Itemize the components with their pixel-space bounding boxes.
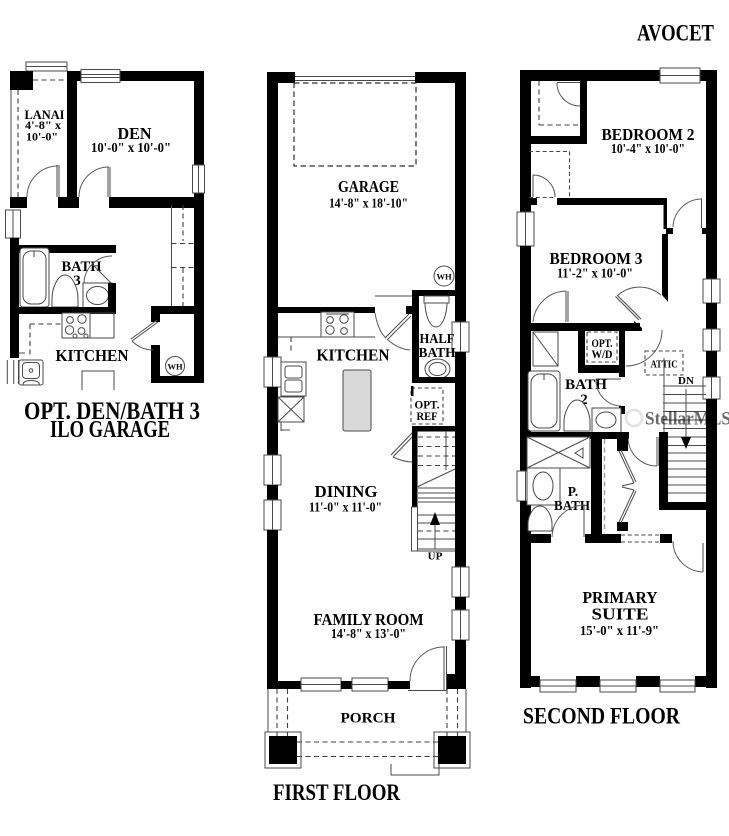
svg-text:SECOND FLOOR: SECOND FLOOR <box>523 704 680 729</box>
svg-text:14'-8" x 13'-0": 14'-8" x 13'-0" <box>331 626 406 641</box>
svg-text:W/D: W/D <box>592 347 613 361</box>
svg-text:11'-2" x 10'-0": 11'-2" x 10'-0" <box>557 266 633 281</box>
svg-text:WH: WH <box>167 362 183 372</box>
svg-text:FIRST FLOOR: FIRST FLOOR <box>273 780 400 805</box>
svg-text:PORCH: PORCH <box>341 711 396 727</box>
svg-text:UP: UP <box>428 551 443 563</box>
svg-text:HALF: HALF <box>420 331 455 346</box>
svg-text:DN: DN <box>678 375 694 387</box>
svg-text:WH: WH <box>436 272 452 282</box>
svg-text:11'-0" x 11'-0": 11'-0" x 11'-0" <box>309 500 382 515</box>
svg-text:10'-0": 10'-0" <box>26 130 58 144</box>
svg-text:DINING: DINING <box>315 482 378 501</box>
svg-text:10'-4" x 10'-0": 10'-4" x 10'-0" <box>611 141 685 156</box>
svg-text:ILO GARAGE: ILO GARAGE <box>50 417 170 443</box>
svg-text:SUITE: SUITE <box>592 605 649 624</box>
svg-text:P.: P. <box>568 484 578 499</box>
svg-text:10'-0" x 10'-0": 10'-0" x 10'-0" <box>91 140 171 155</box>
svg-text:StellarMLS: StellarMLS <box>645 410 729 430</box>
svg-text:BATH: BATH <box>419 345 456 360</box>
svg-text:REF: REF <box>417 409 438 423</box>
svg-text:KITCHEN: KITCHEN <box>56 346 130 365</box>
svg-text:14'-8" x 18'-10": 14'-8" x 18'-10" <box>329 196 408 211</box>
svg-text:BATH: BATH <box>554 498 590 513</box>
svg-text:AVOCET: AVOCET <box>637 21 714 46</box>
svg-text:KITCHEN: KITCHEN <box>317 346 391 365</box>
svg-text:GARAGE: GARAGE <box>338 177 399 196</box>
svg-text:15'-0" x 11'-9": 15'-0" x 11'-9" <box>580 623 659 638</box>
